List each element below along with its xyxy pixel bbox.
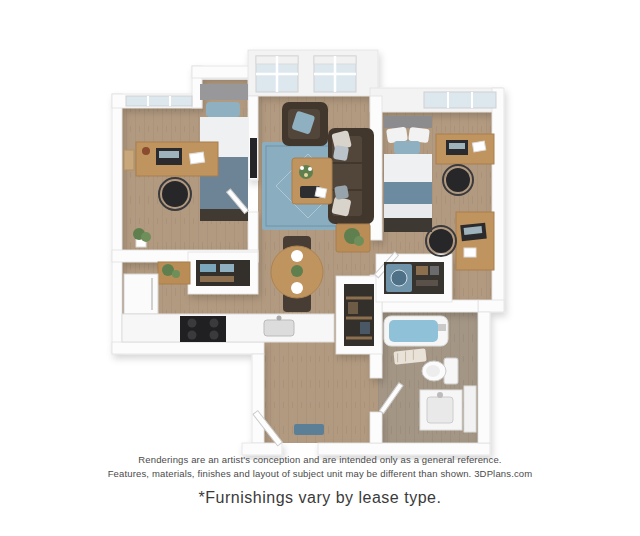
window-pane <box>126 96 192 106</box>
throw-pillow <box>334 185 349 200</box>
wall-right-outer <box>492 88 504 312</box>
desk <box>456 212 494 270</box>
bed-sheet <box>384 154 432 182</box>
closet-shelf <box>416 280 438 286</box>
paper <box>464 248 476 257</box>
closet1 <box>196 260 250 286</box>
laptop-screen <box>449 143 465 149</box>
closet-interior <box>196 260 250 286</box>
bedroom1-window <box>126 96 192 106</box>
laptop-screen <box>159 151 179 158</box>
tv <box>250 138 257 178</box>
burner <box>188 319 197 328</box>
furnishings-note: *Furnishings vary by lease type. <box>0 489 640 507</box>
bed-sheet-foot <box>384 204 432 218</box>
wall-hall-bathroom-lower <box>370 412 382 443</box>
bed-footboard <box>384 218 432 232</box>
closet-shelf <box>200 276 234 282</box>
folded-towels <box>220 264 234 272</box>
office-chair <box>443 165 473 195</box>
caption-block: Renderings are an artist's conception an… <box>0 453 640 507</box>
faucet <box>277 316 282 321</box>
desk <box>136 142 218 176</box>
toilet-seat <box>426 365 440 377</box>
vanity-sink <box>420 386 476 432</box>
faucet <box>437 392 443 398</box>
bed-pillow <box>408 127 430 143</box>
hanging-clothes <box>348 302 358 314</box>
tub-water <box>389 320 438 342</box>
bed-footboard <box>200 209 248 221</box>
bedroom2-window <box>424 92 496 108</box>
burner <box>210 331 219 340</box>
throw-pillow <box>333 145 349 161</box>
living-window-left <box>256 56 298 92</box>
coffee-table <box>292 158 332 204</box>
office-chair <box>426 226 456 256</box>
wall-art <box>124 150 134 170</box>
wall-kitchen-bottom <box>112 342 264 354</box>
wall-hall-left <box>252 354 264 443</box>
window-pane <box>424 92 496 108</box>
burner <box>210 319 219 328</box>
book <box>315 187 327 198</box>
bed-headboard <box>384 116 432 128</box>
flower <box>308 167 312 171</box>
floor-plan-rendering <box>0 0 640 460</box>
sofa <box>328 128 374 224</box>
wall-bathroom-right <box>478 312 490 443</box>
chair-seat <box>446 168 470 192</box>
tub-faucet <box>438 324 446 331</box>
sideboard <box>158 262 190 284</box>
bathtub <box>384 316 448 346</box>
hall-closet <box>344 284 374 346</box>
bed-pillow-accent <box>394 141 420 154</box>
wall-left-outer <box>112 94 122 354</box>
plate <box>291 282 303 294</box>
plate <box>291 250 303 262</box>
linen-cabinet <box>464 386 476 432</box>
bed-pillow <box>206 102 240 117</box>
armchair <box>282 102 328 146</box>
flower <box>300 166 304 170</box>
stove <box>180 316 226 342</box>
paper <box>472 141 485 152</box>
bed-pillow <box>386 127 408 144</box>
chair-seat <box>162 181 188 207</box>
bed-headboard-blanket <box>200 84 248 100</box>
office-chair <box>159 178 191 210</box>
centerpiece-plant <box>291 265 303 277</box>
desk-lamp <box>142 147 150 155</box>
door-mat <box>294 424 324 435</box>
paper <box>189 152 204 164</box>
stove-top <box>180 316 226 342</box>
desk-top <box>456 212 494 270</box>
plant-leaves <box>354 236 364 246</box>
throw-pillow <box>331 197 351 217</box>
disclaimer-line-1: Renderings are an artist's conception an… <box>0 453 640 467</box>
plant-leaves <box>172 270 180 278</box>
flower <box>304 173 308 177</box>
desk <box>436 134 494 164</box>
shelf-item <box>416 266 428 275</box>
washer-door <box>391 270 407 286</box>
sink-basin <box>264 320 294 336</box>
kitchen-counter <box>122 314 334 342</box>
plant-leaves <box>141 232 151 242</box>
wall-right-step <box>478 300 504 312</box>
laundry-closet <box>384 262 444 294</box>
shelf-item <box>430 266 439 275</box>
burner <box>188 331 197 340</box>
disclaimer-line-2: Features, materials, finishes and layout… <box>0 467 640 481</box>
living-window-right <box>314 56 356 92</box>
folded-towels <box>200 264 216 272</box>
side-table <box>336 224 370 252</box>
hanging-clothes <box>360 322 370 334</box>
bed-duvet-band <box>384 182 432 204</box>
floor-plan-page: Renderings are an artist's conception an… <box>0 0 640 536</box>
sink-basin <box>427 397 453 423</box>
chair-seat <box>429 229 453 253</box>
